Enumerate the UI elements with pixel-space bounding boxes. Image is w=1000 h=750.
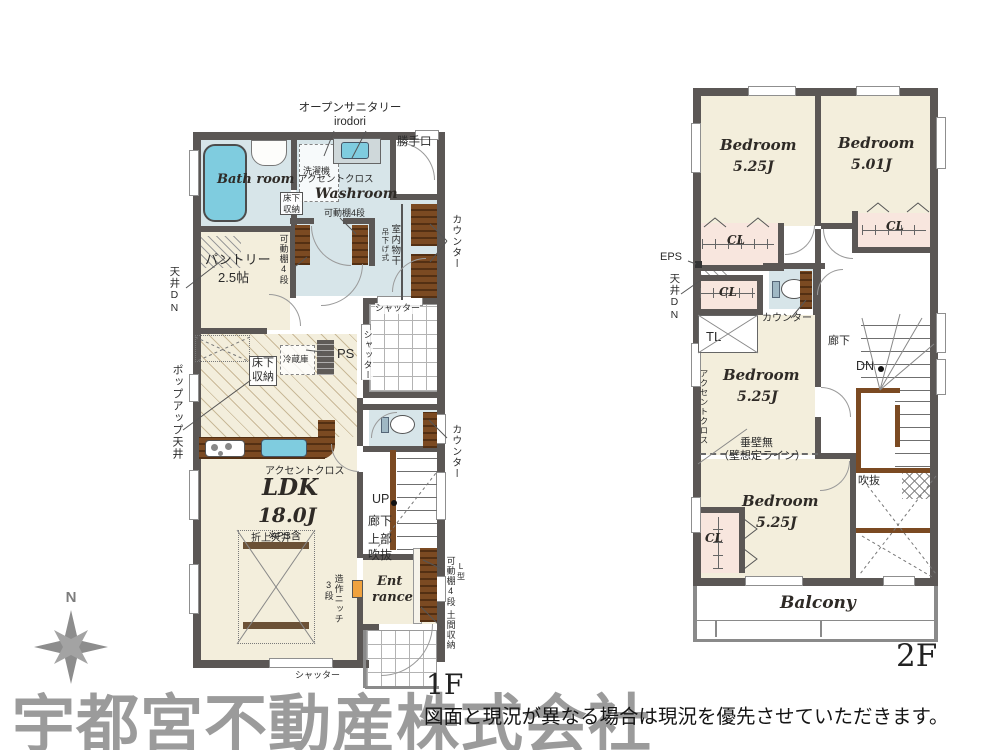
door-swing-arc — [269, 294, 301, 326]
thin-wall — [934, 586, 938, 642]
plan-shape — [856, 388, 861, 470]
wall-segment — [739, 507, 745, 573]
shelf-left — [295, 225, 310, 265]
void-hatch — [902, 473, 930, 499]
door-swing-arc — [823, 229, 853, 259]
disclaimer-text: 図面と現況が異なる場合は現況を優先させていただきます。 — [424, 700, 949, 729]
closet4-label: CL — [705, 531, 723, 545]
stairs-up — [397, 450, 437, 550]
balcony-label: Balcony — [780, 593, 856, 613]
bedroom4-size: 5.25J — [756, 515, 797, 532]
doma-storage-label: 土間収納 — [445, 610, 456, 650]
toilet-counter — [423, 412, 437, 448]
bedroom1-label: Bedroom — [720, 137, 797, 155]
bath-washplace — [251, 140, 287, 166]
hallway-label: 廊下 — [368, 514, 392, 528]
window — [189, 470, 199, 520]
niche-label: 造作ニッチ — [333, 574, 344, 624]
window — [436, 472, 446, 520]
counter-label: カウンター — [449, 424, 461, 479]
marker-dot — [225, 443, 232, 450]
thin-wall — [693, 586, 697, 642]
bedroom3-label: Bedroom — [723, 367, 800, 385]
span: irodori — [334, 116, 366, 128]
stairs-upper — [861, 313, 930, 391]
thin-wall — [715, 621, 717, 637]
vanity-sink — [341, 142, 369, 159]
ceiling-beam — [243, 622, 309, 629]
assumed-line-label: （壁想定ライン） — [718, 450, 806, 463]
window — [936, 359, 946, 395]
wall-segment — [815, 229, 821, 387]
bedroom2-size: 5.01J — [851, 157, 892, 174]
floor2-title: 2F — [896, 638, 937, 674]
door-swing-arc — [785, 225, 815, 255]
window — [189, 374, 199, 402]
window — [745, 576, 803, 586]
wall-segment — [850, 459, 856, 578]
thin-wall — [820, 621, 822, 637]
compass-n-label: N — [66, 589, 77, 606]
pantry-shelf-label: 可動棚4段 — [278, 234, 289, 285]
window — [883, 576, 915, 586]
ceiling-dn-label: 天井DN — [168, 266, 180, 315]
wall-segment — [390, 194, 445, 200]
wall-segment — [693, 275, 763, 281]
dn-marker-dot — [878, 366, 884, 372]
no-hanging-wall-label: 垂壁無 — [740, 437, 773, 450]
wall-segment — [363, 392, 445, 398]
counter-upper — [411, 204, 437, 246]
window — [936, 117, 946, 169]
shutter-label: シャッター — [362, 330, 373, 380]
wall-segment — [369, 224, 375, 266]
plan-shape — [856, 388, 900, 393]
indoor-drying-label: 室内物干 — [389, 224, 400, 266]
wall-segment — [815, 88, 821, 226]
back-door-label: 勝手口 — [397, 136, 432, 150]
window — [189, 150, 199, 196]
dn-label: DN — [856, 359, 874, 374]
closet2-label: CL — [886, 219, 904, 233]
span: 収納 — [283, 204, 300, 214]
window — [748, 86, 796, 96]
window — [691, 497, 701, 533]
entrance-label: Ent — [377, 574, 402, 589]
bedroom2-label: Bedroom — [838, 135, 915, 153]
counter-label: カウンター — [449, 214, 461, 269]
window — [936, 313, 946, 353]
door-swing-arc — [821, 387, 851, 417]
span: 床下 — [283, 193, 300, 203]
counter2f-wood — [800, 271, 812, 309]
floorplan-page: Bath room 洗濯機 アクセントクロス Washroom 床下収納 可動棚… — [0, 0, 1000, 750]
bedroom4-label: Bedroom — [742, 493, 819, 511]
hallway2f-label: 廊下 — [828, 335, 850, 348]
shelf-right — [352, 225, 368, 265]
shutter-label: シャッター — [375, 303, 420, 314]
wall-segment — [363, 404, 437, 410]
counter2f-label: カウンター — [762, 313, 812, 325]
ceiling-dn-label: 天井DN — [668, 273, 680, 322]
pipe-space — [317, 340, 334, 375]
floor-storage-label: 床下収納 — [249, 356, 277, 386]
bathroom-label: Bath room — [217, 172, 277, 187]
span: 収納 — [252, 371, 274, 383]
window — [436, 414, 446, 444]
l-shape-label: L型 — [456, 562, 465, 581]
void-upper-label2: 吹抜 — [368, 548, 392, 562]
pantry-label: パントリー — [205, 252, 271, 267]
window — [691, 123, 701, 173]
wall-segment — [357, 472, 363, 558]
door-swing-arc — [321, 264, 363, 306]
accent-cloth-label: アクセントクロス — [298, 174, 374, 185]
bedroom3-size: 5.25J — [737, 389, 778, 406]
entrance-shelf-label: 可動棚4段 — [445, 556, 456, 607]
window — [189, 564, 199, 614]
toilet2f-tank — [772, 281, 780, 298]
floor1-title: 1F — [426, 668, 463, 701]
kitchen-ceiling-box — [195, 335, 250, 362]
ldk-size-label: 18.0J — [258, 504, 316, 528]
marker-dot — [211, 444, 218, 451]
wall-segment — [852, 247, 938, 253]
void-upper-label: 上部 — [368, 532, 392, 546]
stairs-lower — [895, 391, 930, 467]
entrance-label2: rance — [372, 590, 413, 605]
popup-ceiling-label: ポップアップ天井 — [170, 364, 183, 460]
up-label: UP — [372, 492, 389, 507]
void-label: 吹抜 — [858, 475, 880, 488]
coffered-ceiling-label: 折上天井 — [251, 533, 291, 545]
fridge-label: 冷蔵庫 — [283, 354, 309, 364]
tl-label: TL — [706, 329, 721, 344]
plan-shape — [856, 528, 937, 533]
closet3-label: CL — [719, 285, 737, 299]
marker-dot — [218, 451, 223, 456]
entrance-storage-shelf — [420, 548, 437, 622]
wall-segment — [757, 275, 763, 315]
floor-2-plan: Bedroom 5.25J Bedroom 5.01J CL CL CL CL … — [690, 85, 950, 685]
up-marker-dot — [391, 500, 397, 506]
washroom-label: Washroom — [315, 186, 398, 203]
window — [269, 658, 333, 668]
ps-label: PS — [337, 346, 354, 361]
wall-segment — [193, 226, 293, 232]
plan-shape — [895, 405, 900, 447]
eps-label: EPS — [660, 251, 682, 264]
floor-1-plan: Bath room 洗濯機 アクセントクロス Washroom 床下収納 可動棚… — [185, 128, 465, 708]
open-sanitary-label: オープンサニタリーirodori — [287, 102, 413, 129]
wall-segment — [290, 218, 314, 224]
shelf4-label: 可動棚4段 — [324, 208, 365, 219]
closet1-label: CL — [727, 233, 745, 247]
wall-segment — [193, 328, 267, 334]
pantry-size-label: 2.5帖 — [218, 270, 249, 285]
accent-cloth-label: アクセントクロス — [699, 369, 709, 445]
niche-steps-label: 3段 — [323, 580, 334, 601]
terrace-tiles — [369, 304, 438, 392]
thin-wall — [697, 620, 934, 621]
window — [856, 86, 900, 96]
ldk-label: LDK — [262, 474, 318, 501]
kitchen-sink — [261, 439, 307, 457]
hanging-type-label: 吊下げ式 — [380, 228, 389, 262]
span: オープンサニタリー — [299, 102, 402, 114]
eps-box — [695, 261, 702, 268]
bedroom1-size: 5.25J — [733, 159, 774, 176]
span: 床下 — [252, 357, 274, 369]
niche-box — [352, 580, 363, 598]
floor-storage-label: 床下収納 — [280, 192, 303, 215]
